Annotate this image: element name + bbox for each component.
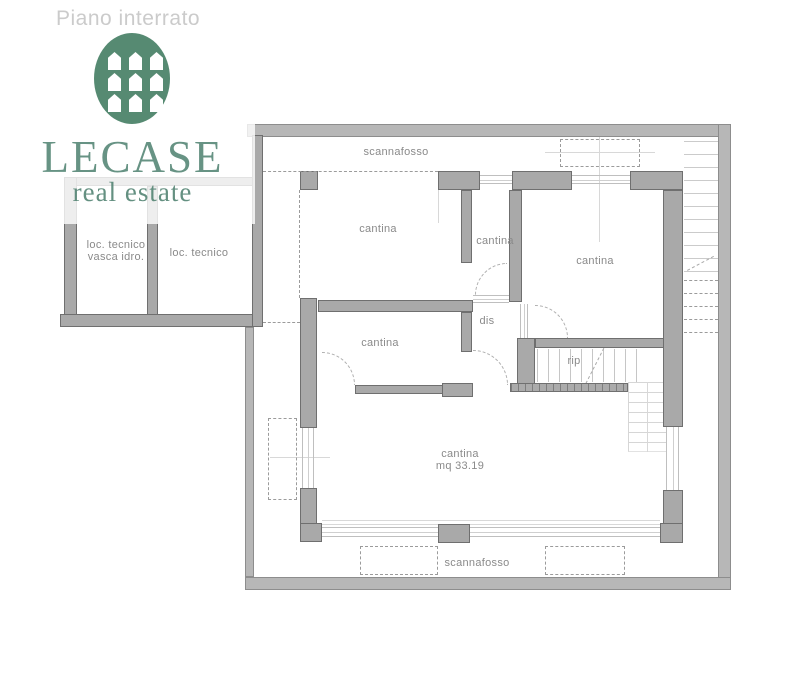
wall xyxy=(630,171,683,190)
wall xyxy=(245,577,731,590)
sill-line xyxy=(322,524,660,525)
lecase-logo: LECASE real estate xyxy=(0,0,265,224)
wall xyxy=(718,124,731,590)
page-title: Piano interrato xyxy=(56,7,256,31)
door-swing-arc xyxy=(473,350,508,385)
window xyxy=(470,527,660,537)
center-mark-line xyxy=(599,190,600,242)
wall xyxy=(245,327,254,577)
area-label-scannafosso-top: scannafosso xyxy=(340,146,452,158)
wall xyxy=(300,298,317,428)
wall xyxy=(438,171,480,190)
area-label-scannafosso-bottom: scannafosso xyxy=(421,557,533,569)
external-stairs xyxy=(684,141,718,274)
lightwell-outline xyxy=(560,139,640,167)
house-icon xyxy=(129,73,142,91)
wall xyxy=(60,314,263,327)
wall xyxy=(300,171,318,190)
lightwell-outline xyxy=(545,546,625,575)
stair-tread-dashed xyxy=(684,280,718,281)
stair-tread-dashed xyxy=(684,332,718,333)
wall xyxy=(247,124,731,137)
door-swing-arc xyxy=(322,352,355,385)
door-threshold xyxy=(473,295,509,303)
room-label-rip: rip xyxy=(549,355,599,367)
sill-line xyxy=(322,520,660,521)
window xyxy=(322,527,438,537)
house-icon xyxy=(108,52,121,70)
wall xyxy=(300,523,322,542)
room-label-cantina-big: cantina mq 33.19 xyxy=(400,448,520,472)
scannafosso-edge-dashed xyxy=(263,171,438,172)
wall xyxy=(535,338,665,348)
door-swing-arc xyxy=(535,305,568,338)
window xyxy=(666,427,679,490)
house-icon xyxy=(108,94,121,112)
house-icon xyxy=(150,94,163,112)
wall xyxy=(510,383,628,392)
window xyxy=(302,427,314,488)
houses-grid-ellipse-icon xyxy=(94,33,170,124)
room-label-line: mq 33.19 xyxy=(400,460,520,472)
wall xyxy=(438,524,470,543)
house-icon xyxy=(108,73,121,91)
lightwell-outline xyxy=(268,418,297,500)
door-swing-arc xyxy=(475,263,507,295)
floor-plan-page: scannafosso loc. tecnico vasca idro. loc… xyxy=(0,0,800,689)
house-icon xyxy=(150,52,163,70)
stair-tread-dashed xyxy=(684,319,718,320)
room-label-cantina-ne: cantina xyxy=(545,255,645,267)
window xyxy=(572,175,630,184)
room-label-line: cantina xyxy=(400,448,520,460)
room-label-loc-tecnico: loc. tecnico xyxy=(149,247,249,259)
door-threshold xyxy=(520,304,528,338)
room-label-dis: dis xyxy=(462,315,512,327)
house-icon xyxy=(129,94,142,112)
house-icon xyxy=(150,73,163,91)
scannafosso-edge-dashed xyxy=(299,190,300,298)
room-label-cantina-mid-top: cantina xyxy=(445,235,545,247)
brand-tagline: real estate xyxy=(10,178,255,206)
stair-tread-dashed xyxy=(684,306,718,307)
wall xyxy=(512,171,572,190)
stair-tread-dashed xyxy=(684,293,718,294)
wall xyxy=(318,300,473,312)
brand-name: LECASE xyxy=(10,134,255,180)
room-label-cantina-mid: cantina xyxy=(330,337,430,349)
window xyxy=(480,175,512,184)
wall xyxy=(660,523,683,543)
wall xyxy=(442,383,473,397)
room-label-cantina-nw: cantina xyxy=(328,223,428,235)
wall xyxy=(461,190,472,263)
wall xyxy=(355,385,443,394)
house-icon xyxy=(129,52,142,70)
center-mark-line xyxy=(438,190,439,223)
scannafosso-edge-dashed xyxy=(263,322,300,323)
wall xyxy=(663,190,683,427)
stairs-turn-line xyxy=(647,382,648,452)
